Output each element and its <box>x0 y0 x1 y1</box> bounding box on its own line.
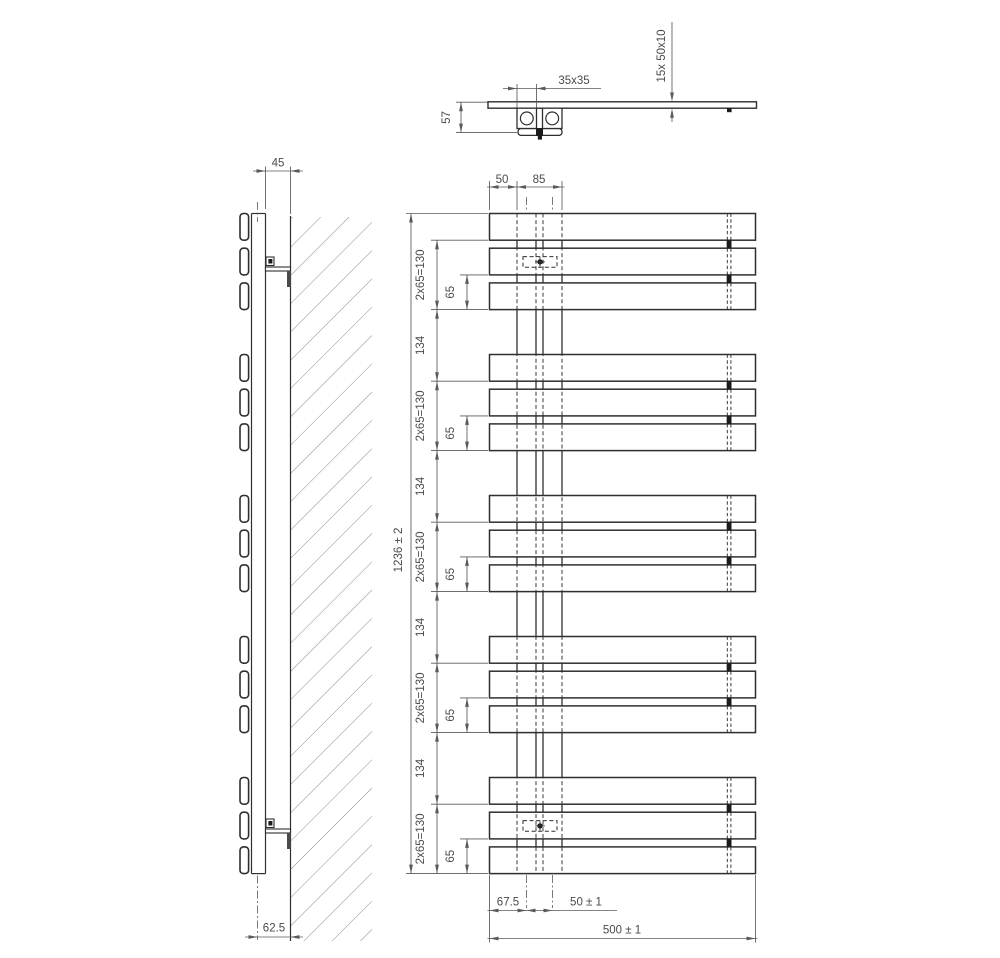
top-view: 57 35x35 15x 50x10 <box>441 22 757 140</box>
dim-label-slat-pitch: 65 <box>445 850 457 863</box>
dim-label-slat-pitch: 65 <box>445 286 457 299</box>
front-slat <box>490 637 756 664</box>
top-dim-arrows <box>459 87 674 133</box>
dim-label-axis-to-wall: 62.5 <box>263 923 285 935</box>
side-slat-pill <box>240 424 249 451</box>
dim-arrow <box>508 87 517 91</box>
dim-label-depth: 57 <box>441 111 453 124</box>
dim-label-edge-to-tube: 50 <box>496 174 509 186</box>
support-visible-segment <box>727 522 732 530</box>
side-slat-pills <box>240 214 249 874</box>
front-slat <box>490 847 756 874</box>
dim-arrow <box>435 663 439 672</box>
dim-arrow <box>435 654 439 663</box>
dim-arrow <box>465 583 469 592</box>
dim-arrow <box>435 522 439 531</box>
dim-label-conn-spacing: 50 ± 1 <box>570 897 602 909</box>
dim-arrow <box>435 451 439 460</box>
side-slat-pill <box>240 283 249 310</box>
side-slat-pill <box>240 496 249 523</box>
dim-label-wall-clearance: 45 <box>272 158 285 170</box>
front-slat <box>490 424 756 451</box>
side-slat-pill <box>240 637 249 664</box>
side-slat-pill <box>240 671 249 698</box>
support-visible-segment <box>727 663 732 671</box>
side-slat-pill <box>240 847 249 874</box>
dim-arrow <box>670 93 674 102</box>
front-slat <box>490 778 756 805</box>
bracket-wall-plate <box>287 271 291 287</box>
support-visible-segment <box>727 839 732 847</box>
dim-label-double-pitch: 2x65=130 <box>415 249 427 300</box>
dim-arrow <box>435 795 439 804</box>
dim-label-slat-pitch: 65 <box>445 709 457 722</box>
dim-label-slat-pitch: 65 <box>445 427 457 440</box>
bracket-screw-core <box>268 821 272 826</box>
dim-arrow <box>465 275 469 284</box>
dim-arrow <box>435 724 439 733</box>
bracket-arm <box>266 267 291 271</box>
dim-label-slat-pitch: 65 <box>445 568 457 581</box>
front-view: 2x65=1301342x65=1301342x65=1301342x65=13… <box>393 174 758 943</box>
dim-arrow <box>435 381 439 390</box>
dim-arrow <box>465 416 469 425</box>
side-view: 45 62.5 <box>240 158 372 942</box>
dim-arrow <box>459 124 463 133</box>
front-slat <box>490 706 756 733</box>
side-slat-pill <box>240 565 249 592</box>
front-slats <box>490 214 756 874</box>
side-slat-pill <box>240 389 249 416</box>
front-slat <box>490 214 756 241</box>
top-view-bracket-screw <box>536 128 543 136</box>
dim-arrow <box>435 513 439 522</box>
dim-arrow <box>435 372 439 381</box>
side-slat-pill <box>240 530 249 557</box>
dim-arrow <box>435 865 439 874</box>
support-visible-segment <box>727 557 732 565</box>
front-slat <box>490 389 756 416</box>
drawing-canvas: 57 35x35 15x 50x10 <box>0 0 1000 958</box>
front-slat <box>490 496 756 523</box>
dim-label-tube-span: 85 <box>533 174 546 186</box>
dim-arrow <box>465 839 469 848</box>
top-view-support-tab <box>727 108 732 112</box>
support-visible-segment <box>727 275 732 283</box>
side-slat-pill <box>240 706 249 733</box>
side-wall-bracket <box>266 819 291 849</box>
bracket-wall-plate <box>287 833 291 849</box>
dim-arrow <box>465 301 469 310</box>
dim-label-conn-offset: 67.5 <box>497 897 519 909</box>
dim-label-double-pitch: 2x65=130 <box>415 390 427 441</box>
front-slat <box>490 283 756 310</box>
dim-label-group-gap: 134 <box>415 476 427 496</box>
front-slat <box>490 248 756 275</box>
support-visible-segment <box>727 698 732 706</box>
side-slat-pill <box>240 214 249 241</box>
dim-label-group-gap: 134 <box>415 335 427 355</box>
side-slat-pill <box>240 812 249 839</box>
dim-label-double-pitch: 2x65=130 <box>415 672 427 723</box>
dim-arrow <box>537 87 546 91</box>
dim-arrow <box>435 310 439 319</box>
front-slat <box>490 565 756 592</box>
support-visible-segment <box>727 804 732 812</box>
support-visible-segment <box>727 240 732 248</box>
front-view-dim-bottom: 67.5 50 ± 1 500 ± 1 <box>488 875 758 943</box>
dim-arrow <box>435 592 439 601</box>
dim-arrow <box>435 733 439 742</box>
dim-arrow <box>465 442 469 451</box>
support-visible-segment <box>727 416 732 424</box>
dim-arrow <box>465 724 469 733</box>
dim-label-tube-profile: 35x35 <box>558 75 589 87</box>
bracket-arm <box>266 829 291 833</box>
dim-arrow <box>670 109 674 118</box>
dim-label-group-gap: 134 <box>415 617 427 637</box>
front-slat <box>490 355 756 382</box>
side-view-dim-wall-clearance: 45 <box>253 158 303 215</box>
dim-arrow <box>465 698 469 707</box>
dim-arrow <box>435 804 439 813</box>
dim-arrow <box>459 102 463 111</box>
side-view-wall-hatch <box>291 217 373 941</box>
dim-arrow <box>435 240 439 249</box>
front-slat <box>490 812 756 839</box>
dim-arrow <box>435 301 439 310</box>
side-slat-pill <box>240 355 249 382</box>
support-visible-segment <box>727 381 732 389</box>
top-view-bracket-screw-tip <box>538 135 542 139</box>
side-slat-pill <box>240 248 249 275</box>
front-slat <box>490 671 756 698</box>
side-wall-bracket <box>266 257 291 287</box>
dim-arrow <box>465 865 469 874</box>
dim-label-total-width: 500 ± 1 <box>603 925 641 937</box>
dim-label-group-gap: 134 <box>415 758 427 778</box>
dim-label-double-pitch: 2x65=130 <box>415 813 427 864</box>
dim-label-double-pitch: 2x65=130 <box>415 531 427 582</box>
dim-arrow <box>435 442 439 451</box>
dim-arrow <box>435 583 439 592</box>
top-view-slat-profile <box>488 102 757 108</box>
front-view-dim-total-height: 1236 ± 2 <box>393 214 411 874</box>
dim-label-slat-profile: 15x 50x10 <box>656 29 668 82</box>
bracket-screw-core <box>268 259 272 264</box>
dim-arrow <box>465 557 469 566</box>
dim-label-total-height: 1236 ± 2 <box>393 528 405 573</box>
radiator-technical-drawing: 57 35x35 15x 50x10 <box>0 0 1000 958</box>
side-slat-pill <box>240 778 249 805</box>
front-slat <box>490 530 756 557</box>
